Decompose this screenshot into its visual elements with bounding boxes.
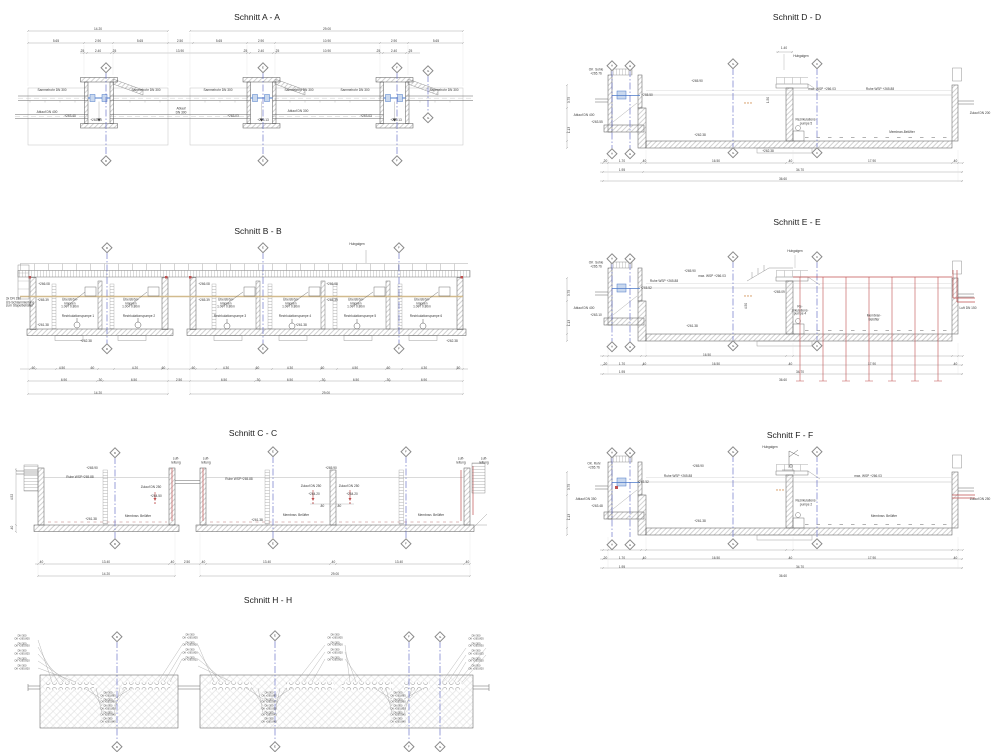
- drawing-canvas: [0, 0, 1000, 752]
- section-e-linework: [566, 255, 975, 381]
- section-b-linework: [18, 250, 470, 395]
- section-a-title: Schnitt A - A: [234, 12, 280, 22]
- drawing-sheet: Schnitt A - A Schnitt D - D Schnitt B - …: [0, 0, 1000, 752]
- section-c-title: Schnitt C - C: [229, 428, 277, 438]
- section-h-linework: [28, 640, 489, 743]
- section-f-title: Schnitt F - F: [767, 430, 813, 440]
- section-h-title: Schnitt H - H: [244, 595, 292, 605]
- section-e-title: Schnitt E - E: [773, 217, 820, 227]
- section-f-linework: [566, 450, 975, 569]
- section-d-title: Schnitt D - D: [773, 12, 821, 22]
- section-a-linework: [15, 30, 473, 156]
- section-d-linework: [566, 51, 974, 182]
- section-c-linework: [15, 456, 487, 577]
- section-b-title: Schnitt B - B: [234, 226, 281, 236]
